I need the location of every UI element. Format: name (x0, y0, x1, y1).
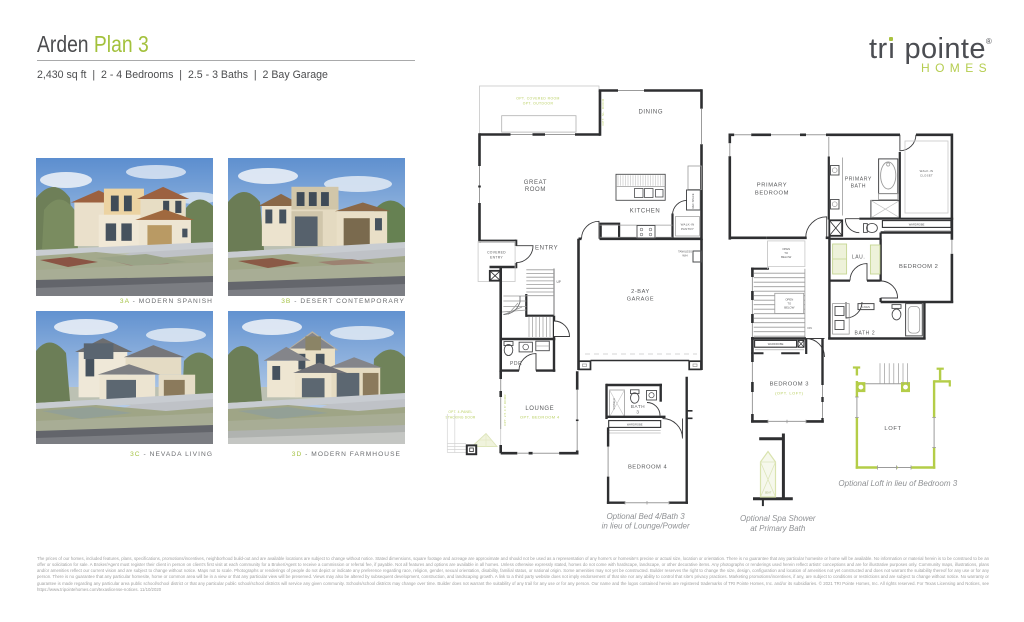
svg-text:OPT. 4-PANEL: OPT. 4-PANEL (448, 410, 472, 414)
svg-text:Optional Spa Shower: Optional Spa Shower (740, 514, 816, 523)
svg-text:OPT. COVERED ROOM: OPT. COVERED ROOM (516, 97, 560, 101)
svg-text:ENTRY: ENTRY (535, 246, 558, 252)
svg-text:UP: UP (557, 280, 561, 284)
svg-text:OPT. SL. DOOR: OPT. SL. DOOR (601, 98, 605, 125)
svg-text:SHOWER: SHOWER (613, 398, 616, 409)
svg-text:BATH: BATH (851, 184, 866, 190)
svg-text:DN: DN (808, 326, 812, 330)
svg-text:STACKING DOOR: STACKING DOOR (445, 416, 475, 420)
svg-text:BATH 2: BATH 2 (855, 331, 876, 337)
svg-text:OPT. BEDROOM 4: OPT. BEDROOM 4 (520, 415, 560, 420)
svg-text:2-BAY: 2-BAY (631, 289, 650, 295)
svg-text:WARDROBE: WARDROBE (768, 342, 784, 346)
svg-text:WARDROBE: WARDROBE (627, 422, 643, 426)
svg-text:PDR: PDR (510, 361, 522, 367)
svg-text:(OPT. LOFT): (OPT. LOFT) (775, 391, 804, 396)
svg-text:at Primary Bath: at Primary Bath (750, 524, 806, 533)
svg-text:3: 3 (636, 410, 639, 415)
svg-text:COVERED: COVERED (487, 251, 506, 255)
svg-text:LOUNGE: LOUNGE (525, 406, 554, 412)
svg-text:ENTRY: ENTRY (490, 256, 503, 260)
svg-text:W/H: W/H (682, 254, 687, 258)
svg-text:ROOM: ROOM (525, 187, 546, 193)
svg-text:WARDROBE: WARDROBE (909, 222, 925, 226)
svg-text:BEDROOM 3: BEDROOM 3 (770, 381, 809, 387)
svg-text:PRIMARY: PRIMARY (757, 182, 788, 188)
svg-text:WALK-IN: WALK-IN (920, 169, 934, 173)
svg-text:PRIMARY: PRIMARY (845, 177, 872, 183)
svg-text:DINING: DINING (638, 110, 663, 116)
svg-text:LINEN: LINEN (862, 305, 870, 309)
svg-text:REF SPACE: REF SPACE (691, 193, 695, 208)
svg-text:GREAT: GREAT (524, 180, 547, 186)
svg-text:OPT. 2'6 X 8' DOOR: OPT. 2'6 X 8' DOOR (503, 394, 507, 426)
svg-text:BELOW: BELOW (781, 255, 791, 259)
svg-text:in lieu of Lounge/Powder: in lieu of Lounge/Powder (602, 522, 690, 531)
svg-text:LOFT: LOFT (884, 426, 901, 432)
svg-text:PANTRY: PANTRY (681, 227, 694, 231)
svg-text:SEAT: SEAT (765, 491, 772, 495)
svg-text:BELOW: BELOW (784, 306, 794, 310)
svg-text:CLOSET: CLOSET (920, 174, 933, 178)
svg-text:GARAGE: GARAGE (627, 297, 655, 303)
svg-text:BATH: BATH (631, 404, 645, 409)
svg-text:LAU.: LAU. (852, 255, 866, 261)
svg-text:TANKLESS: TANKLESS (678, 250, 692, 254)
svg-text:KITCHEN: KITCHEN (630, 208, 661, 214)
svg-text:BEDROOM: BEDROOM (755, 190, 789, 196)
svg-text:BEDROOM 4: BEDROOM 4 (628, 464, 668, 470)
svg-text:OPT. OUTDOOR: OPT. OUTDOOR (523, 102, 554, 106)
svg-text:Optional Loft in lieu of Bedro: Optional Loft in lieu of Bedroom 3 (838, 479, 957, 488)
svg-text:WALK-IN: WALK-IN (681, 223, 695, 227)
svg-text:BEDROOM 2: BEDROOM 2 (899, 264, 938, 270)
svg-text:Optional Bed 4/Bath 3: Optional Bed 4/Bath 3 (606, 512, 685, 521)
